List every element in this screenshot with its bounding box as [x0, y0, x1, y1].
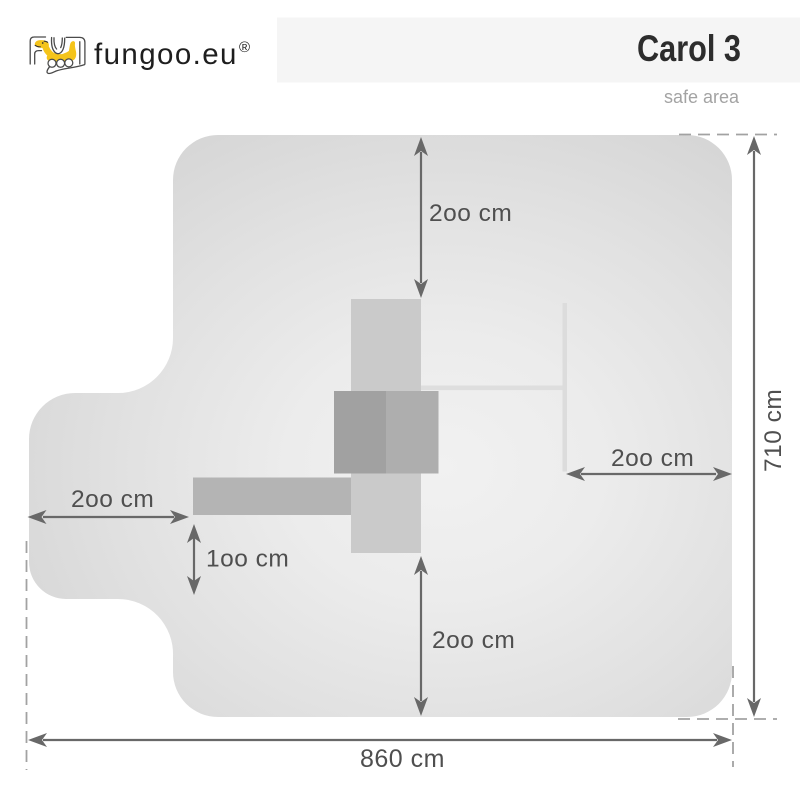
- svg-text:®: ®: [239, 39, 250, 56]
- svg-text:fungoo.eu: fungoo.eu: [94, 38, 238, 71]
- svg-text:2oo cm: 2oo cm: [432, 627, 515, 654]
- svg-text:2oo cm: 2oo cm: [71, 486, 154, 513]
- svg-text:710 cm: 710 cm: [760, 389, 787, 472]
- svg-text:safe area: safe area: [664, 87, 740, 107]
- svg-text:2oo cm: 2oo cm: [429, 200, 512, 227]
- svg-text:Carol 3: Carol 3: [637, 27, 741, 69]
- svg-text:860 cm: 860 cm: [360, 745, 445, 773]
- svg-text:2oo cm: 2oo cm: [611, 445, 694, 472]
- svg-text:1oo cm: 1oo cm: [206, 546, 289, 573]
